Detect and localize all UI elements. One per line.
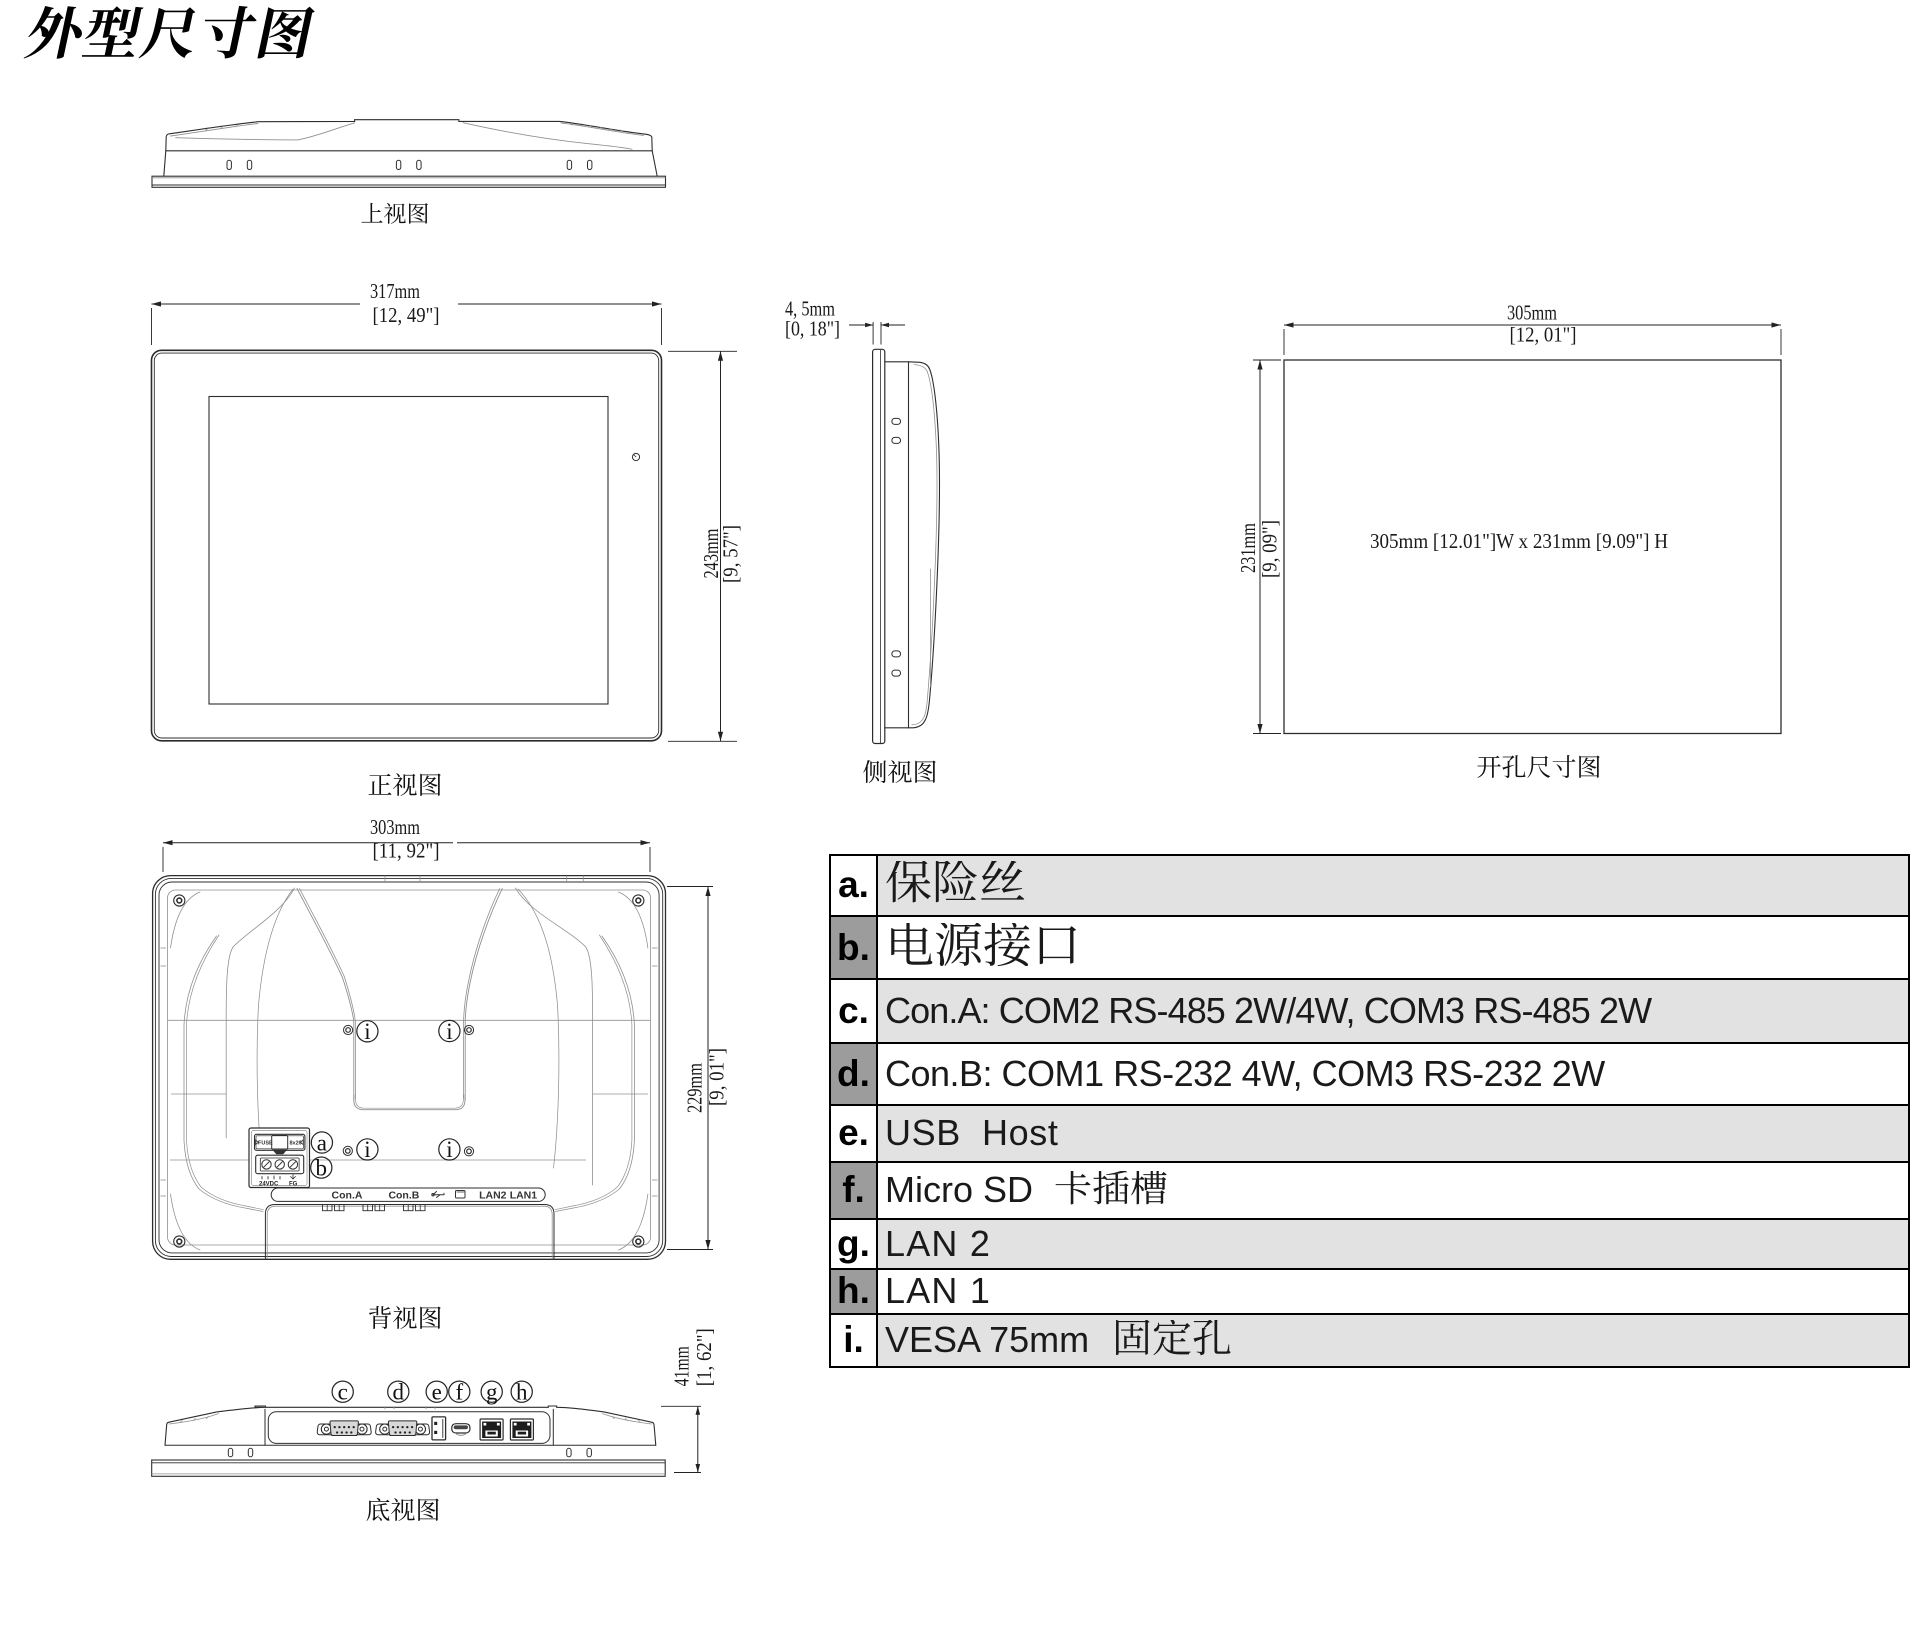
svg-text:g: g [486, 1380, 498, 1405]
svg-text:24VDC: 24VDC [259, 1182, 279, 1188]
svg-text:FG: FG [289, 1182, 298, 1188]
svg-text:b: b [316, 1155, 328, 1180]
svg-text:[11, 92"]: [11, 92"] [373, 839, 440, 863]
svg-text:i: i [364, 1137, 370, 1162]
svg-text:41mm: 41mm [670, 1346, 694, 1386]
svg-text:317mm: 317mm [370, 279, 420, 303]
svg-text:i: i [364, 1019, 370, 1044]
svg-text:LAN2: LAN2 [479, 1190, 507, 1202]
svg-text:LAN1: LAN1 [510, 1190, 538, 1202]
svg-text:i: i [446, 1019, 452, 1044]
svg-text:[9, 01"]: [9, 01"] [705, 1048, 729, 1106]
svg-text:305mm [12.01"]W x 231mm [9.09": 305mm [12.01"]W x 231mm [9.09"] H [1370, 529, 1668, 553]
svg-text:f: f [455, 1380, 463, 1405]
svg-text:FUSE: FUSE [258, 1140, 273, 1146]
svg-text:305mm: 305mm [1507, 301, 1557, 325]
svg-text:229mm: 229mm [683, 1063, 707, 1113]
svg-text:Con.A: Con.A [332, 1190, 363, 1202]
svg-text:c: c [338, 1380, 348, 1405]
svg-text:h: h [516, 1380, 528, 1405]
svg-text:Con.B: Con.B [388, 1190, 419, 1202]
svg-text:[12, 49"]: [12, 49"] [373, 303, 440, 327]
svg-text:303mm: 303mm [370, 815, 420, 839]
svg-text:[9, 09"]: [9, 09"] [1258, 520, 1282, 578]
svg-text:[9, 57"]: [9, 57"] [719, 525, 743, 583]
svg-text:[1, 62"]: [1, 62"] [692, 1328, 716, 1386]
svg-text:[12, 01"]: [12, 01"] [1510, 323, 1577, 347]
svg-text:[0, 18"]: [0, 18"] [785, 317, 840, 341]
svg-text:231mm: 231mm [1236, 523, 1260, 573]
svg-text:i: i [446, 1137, 452, 1162]
svg-text:8x20: 8x20 [290, 1140, 302, 1146]
svg-text:e: e [432, 1380, 442, 1405]
svg-text:a: a [317, 1130, 327, 1155]
svg-text:d: d [393, 1380, 405, 1405]
